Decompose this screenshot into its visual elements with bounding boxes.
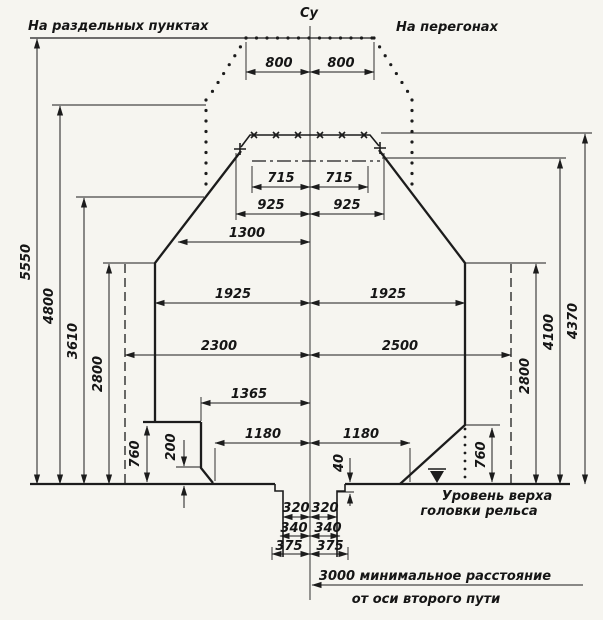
- dim-800-right: 800: [327, 56, 354, 71]
- dim-320-left: 320: [282, 501, 309, 516]
- rail-level-note-line1: Уровень верха: [442, 489, 553, 504]
- dim-40: 40: [332, 454, 347, 473]
- dim-200: 200: [164, 433, 179, 460]
- second-track-note-line1: 3000 минимальное расстояние: [319, 569, 551, 584]
- dim-4800: 4800: [42, 288, 57, 325]
- label-su: Су: [300, 6, 319, 21]
- dim-760-left: 760: [128, 440, 143, 467]
- dim-375-right: 375: [316, 539, 343, 554]
- dim-2500: 2500: [382, 339, 418, 354]
- dim-320-right: 320: [311, 501, 338, 516]
- dim-3610: 3610: [66, 323, 81, 359]
- dim-375-left: 375: [275, 539, 302, 554]
- dim-715-right: 715: [325, 171, 352, 186]
- dim-1925-right: 1925: [370, 287, 406, 302]
- dim-1365: 1365: [231, 387, 267, 402]
- label-na-razdelnyh: На раздельных пунктах: [28, 19, 209, 34]
- extension-lines: [30, 38, 592, 560]
- dim-925-right: 925: [333, 198, 360, 213]
- dim-1300: 1300: [229, 226, 265, 241]
- dim-1180-right: 1180: [343, 427, 379, 442]
- dim-760-right: 760: [474, 441, 489, 468]
- dim-340-right: 340: [314, 521, 341, 536]
- dim-1925-left: 1925: [215, 287, 251, 302]
- dim-5550: 5550: [19, 244, 34, 280]
- clearance-gauge-diagram: На раздельных пунктах Су На перегонах 80…: [0, 0, 603, 620]
- drawing-sheet: На раздельных пунктах Су На перегонах 80…: [0, 0, 603, 620]
- dim-340-left: 340: [280, 521, 307, 536]
- dim-2800-left: 2800: [91, 356, 106, 392]
- dim-715-left: 715: [267, 171, 294, 186]
- dim-4100: 4100: [542, 314, 557, 351]
- pantograph-dotted-contour: [206, 38, 465, 481]
- dim-4370: 4370: [566, 303, 581, 340]
- rail-level-mark: [428, 469, 446, 483]
- rail-level-note-line2: головки рельса: [420, 504, 537, 519]
- label-na-peregonah: На перегонах: [396, 20, 499, 35]
- dashed-contour-lines: [125, 264, 511, 483]
- second-track-note-line2: от оси второго пути: [352, 592, 501, 607]
- dim-2800-right: 2800: [518, 358, 533, 394]
- level-triangle-icon: [430, 471, 444, 483]
- dim-925-left: 925: [257, 198, 284, 213]
- dim-2300: 2300: [201, 339, 237, 354]
- dim-1180-left: 1180: [245, 427, 281, 442]
- dim-800-left: 800: [265, 56, 292, 71]
